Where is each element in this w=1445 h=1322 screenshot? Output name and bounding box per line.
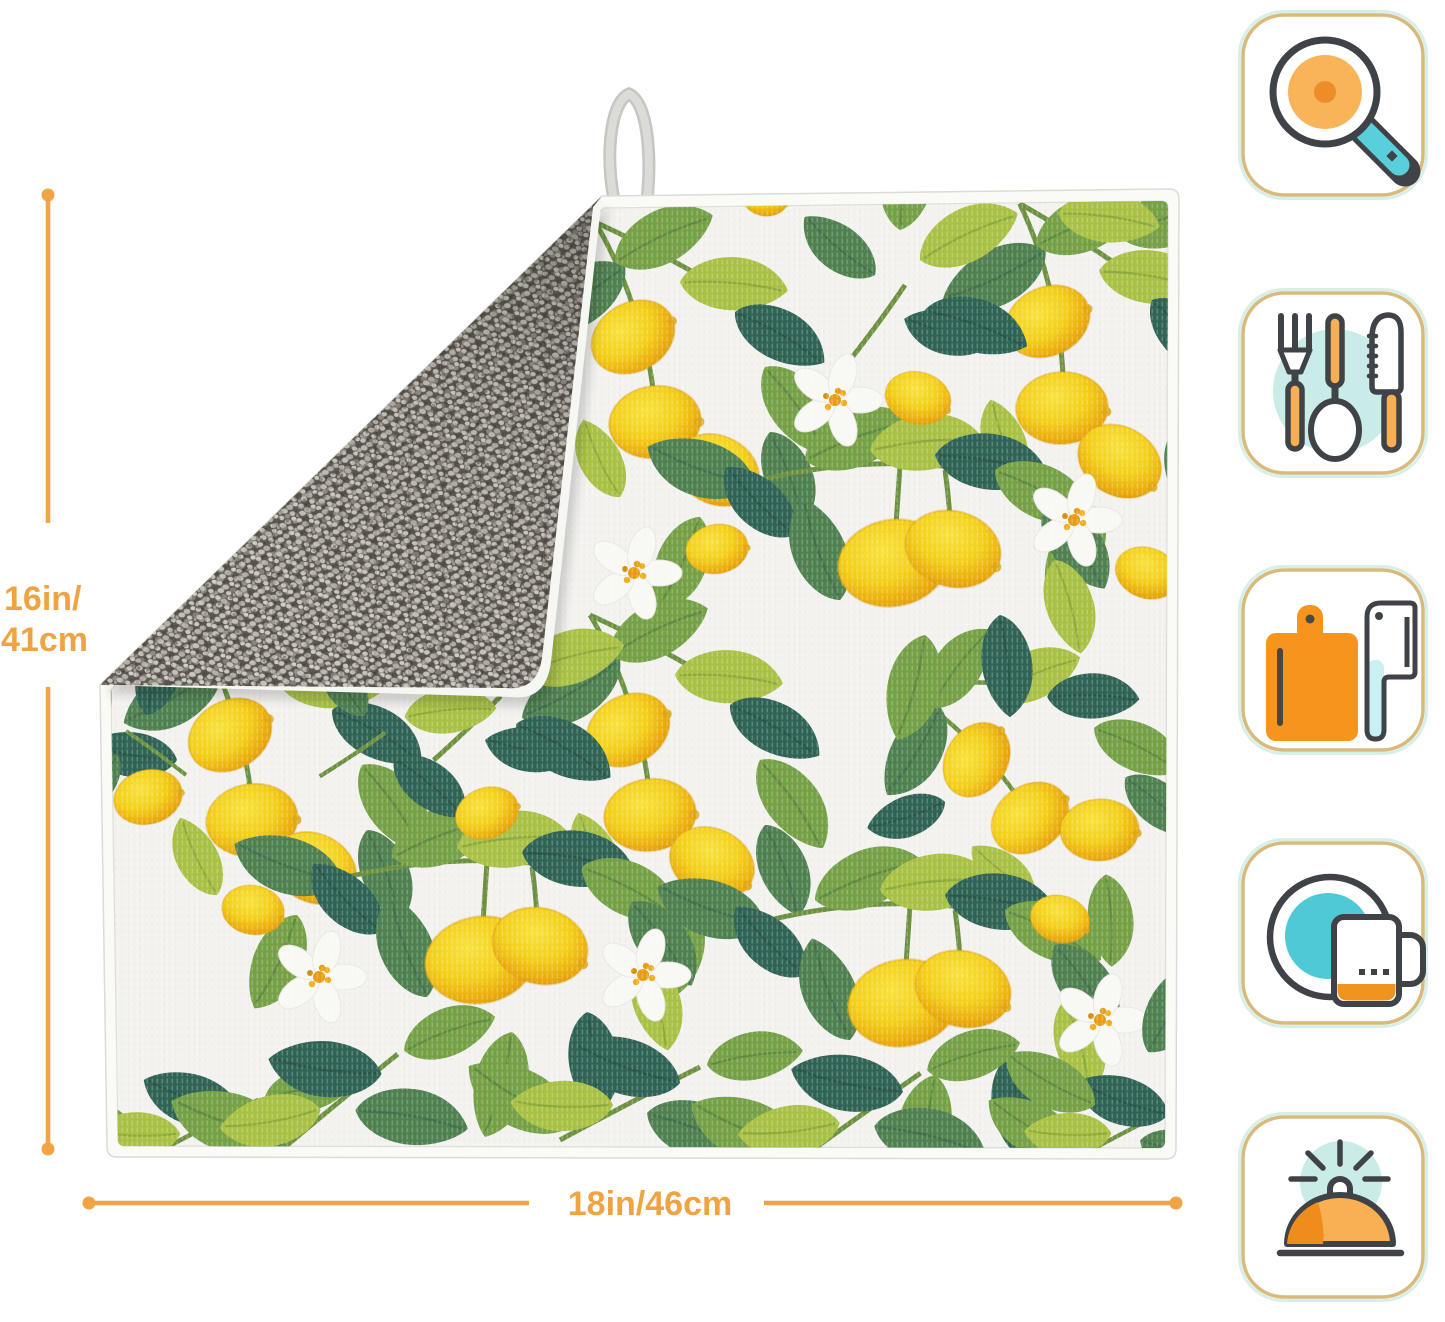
svg-text:16in/: 16in/ [4,580,82,618]
svg-text:41cm: 41cm [1,621,88,659]
svg-text:18in/46cm: 18in/46cm [568,1185,732,1223]
